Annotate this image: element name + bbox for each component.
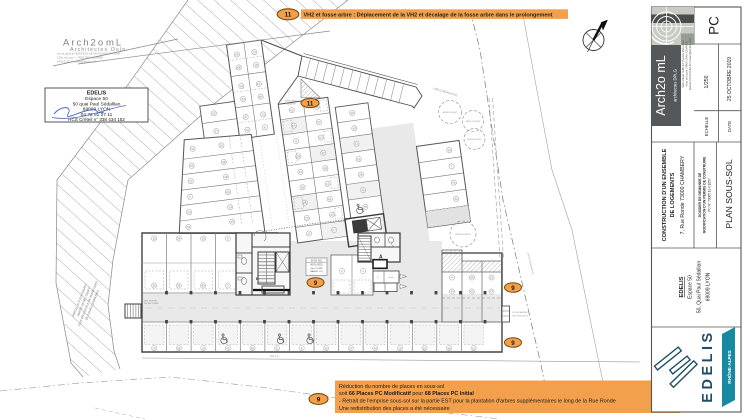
svg-text:CONSTRUCTION D'UN ENSEMBLE: CONSTRUCTION D'UN ENSEMBLE (662, 148, 668, 241)
svg-text:50: 50 (153, 284, 157, 288)
svg-text:66: 66 (202, 284, 206, 288)
svg-text:DE LOGEMENTS: DE LOGEMENTS (670, 172, 676, 217)
svg-text:58: 58 (177, 346, 181, 350)
svg-text:EDELIS: EDELIS (700, 329, 716, 402)
svg-text:9: 9 (511, 285, 515, 292)
svg-text:19: 19 (202, 346, 206, 350)
svg-text:Arch2o mL: Arch2o mL (654, 55, 668, 115)
svg-text:53: 53 (325, 346, 329, 350)
svg-text:50 quai Paul Sédallian: 50 quai Paul Sédallian (73, 101, 121, 107)
svg-text:62: 62 (423, 346, 427, 350)
svg-text:25 OCTOBRE 2019: 25 OCTOBRE 2019 (727, 57, 733, 101)
svg-text:VH2 DEPLACEE: VH2 DEPLACEE (512, 315, 529, 318)
svg-text:RAMPE 17%: RAMPE 17% (310, 270, 323, 273)
svg-text:ARBRE A PLANTER: ARBRE A PLANTER (455, 233, 471, 236)
svg-text:Sur ea cap ld de 5000 € RCS 33: Sur ea cap ld de 5000 € RCS 338 434 152 … (57, 53, 121, 56)
svg-text:Espace 50: Espace 50 (688, 275, 694, 299)
svg-text:9: 9 (317, 396, 321, 403)
svg-text:27: 27 (349, 346, 353, 350)
svg-text:9: 9 (314, 280, 318, 287)
svg-text:10: 10 (202, 237, 206, 241)
svg-text:42: 42 (226, 346, 230, 350)
svg-text:Une redistribution des places: Une redistribution des places a été néce… (339, 406, 450, 412)
svg-text:PC: PC (707, 16, 722, 35)
svg-text:7, Rue Ronde 73000 CHAMBERY: 7, Rue Ronde 73000 CHAMBERY (680, 155, 686, 234)
svg-text:PLAN SOUS-SOL: PLAN SOUS-SOL (724, 159, 734, 228)
svg-text:EDELIS: EDELIS (87, 91, 107, 97)
svg-text:65: 65 (251, 346, 255, 350)
svg-text:RHÔNE-ALPES: RHÔNE-ALPES (725, 350, 732, 383)
svg-text:34: 34 (450, 290, 454, 294)
svg-text:50, Quai Paul Sédallian: 50, Quai Paul Sédallian (697, 261, 703, 313)
svg-text:Rue 5 m: Rue 5 m (270, 355, 279, 358)
svg-text:DATE: DATE (727, 121, 732, 132)
svg-text:61: 61 (470, 290, 474, 294)
svg-text:4 rue du Lycée 74960 CRAN G: 4 rue du Lycée 74960 CRAN GEVRIER (685, 41, 689, 87)
svg-text:DOSSIER DE DEMANDE DE: DOSSIER DE DEMANDE DE (698, 172, 702, 217)
svg-text:PC N° 73065 19 C1057: PC N° 73065 19 C1057 (708, 178, 712, 212)
svg-text:16: 16 (398, 346, 402, 350)
svg-text:31: 31 (275, 346, 279, 350)
svg-text:Espace 50: Espace 50 (85, 96, 108, 102)
svg-text:dont 2 PMR: dont 2 PMR (311, 267, 323, 270)
svg-text:VH2 et fosse arbre : Déplaceme: VH2 et fosse arbre : Déplacement de la V… (304, 12, 553, 18)
svg-text:38: 38 (447, 346, 451, 350)
svg-text:déplacée: déplacée (286, 103, 296, 106)
svg-text:DE SECOURS: DE SECOURS (144, 303, 159, 305)
svg-text:bureau 04-50-52-82-29 conta: bureau 04-50-52-82-29 contact@arch2o-ml.… (688, 38, 692, 90)
svg-text:architectes DPLG: architectes DPLG (673, 69, 678, 102)
svg-text:ARBRE EXISTANT: ARBRE EXISTANT (467, 138, 481, 141)
svg-text:soit 66 Places PC Modificatif: soit 66 Places PC Modificatif pour 68 Pl… (339, 391, 474, 397)
svg-text:EDELIS: EDELIS (679, 276, 685, 297)
svg-text:12: 12 (490, 276, 494, 280)
svg-text:9: 9 (511, 340, 515, 347)
svg-text:47: 47 (490, 290, 494, 294)
svg-text:Réduction du nombre de places: Réduction du nombre de places en sous-so… (339, 384, 444, 390)
svg-text:56: 56 (470, 276, 474, 280)
svg-text:1/250: 1/250 (704, 75, 710, 88)
svg-text:11: 11 (285, 12, 292, 19)
svg-text:39: 39 (177, 284, 181, 288)
svg-text:44: 44 (374, 346, 378, 350)
svg-text:Marc-Olivier SUBLET Thomas: Marc-Olivier SUBLET Thomas PELLOUX (681, 40, 685, 88)
svg-text:66 PLACES: 66 PLACES (310, 264, 323, 267)
svg-text:VH1 SORTIE: VH1 SORTIE (144, 301, 158, 303)
svg-text:21: 21 (472, 346, 476, 350)
svg-text:ARBRE EXISTANT: ARBRE EXISTANT (466, 120, 480, 123)
svg-text:SOUS-SOL: SOUS-SOL (311, 261, 324, 263)
svg-text:24: 24 (177, 237, 181, 241)
svg-text:69009 LYON: 69009 LYON (706, 272, 712, 301)
svg-text:- Retrait de l'emprise sous-so: - Retrait de l'emprise sous-sol sur la p… (339, 399, 616, 405)
svg-text:ECHELLE: ECHELLE (704, 117, 709, 137)
svg-text:ARBRE EXISTANT: ARBRE EXISTANT (443, 111, 457, 114)
svg-text:11: 11 (307, 100, 314, 107)
svg-text:local: local (389, 277, 394, 279)
svg-text:15: 15 (153, 237, 157, 241)
svg-text:23: 23 (153, 346, 157, 350)
svg-text:MODIFICATION D'UN PERMIS DE CO: MODIFICATION D'UN PERMIS DE CONSTRUIRE (703, 156, 707, 233)
svg-text:FOSSE ARBRE: FOSSE ARBRE (512, 311, 528, 314)
svg-text:B: B (256, 276, 259, 281)
